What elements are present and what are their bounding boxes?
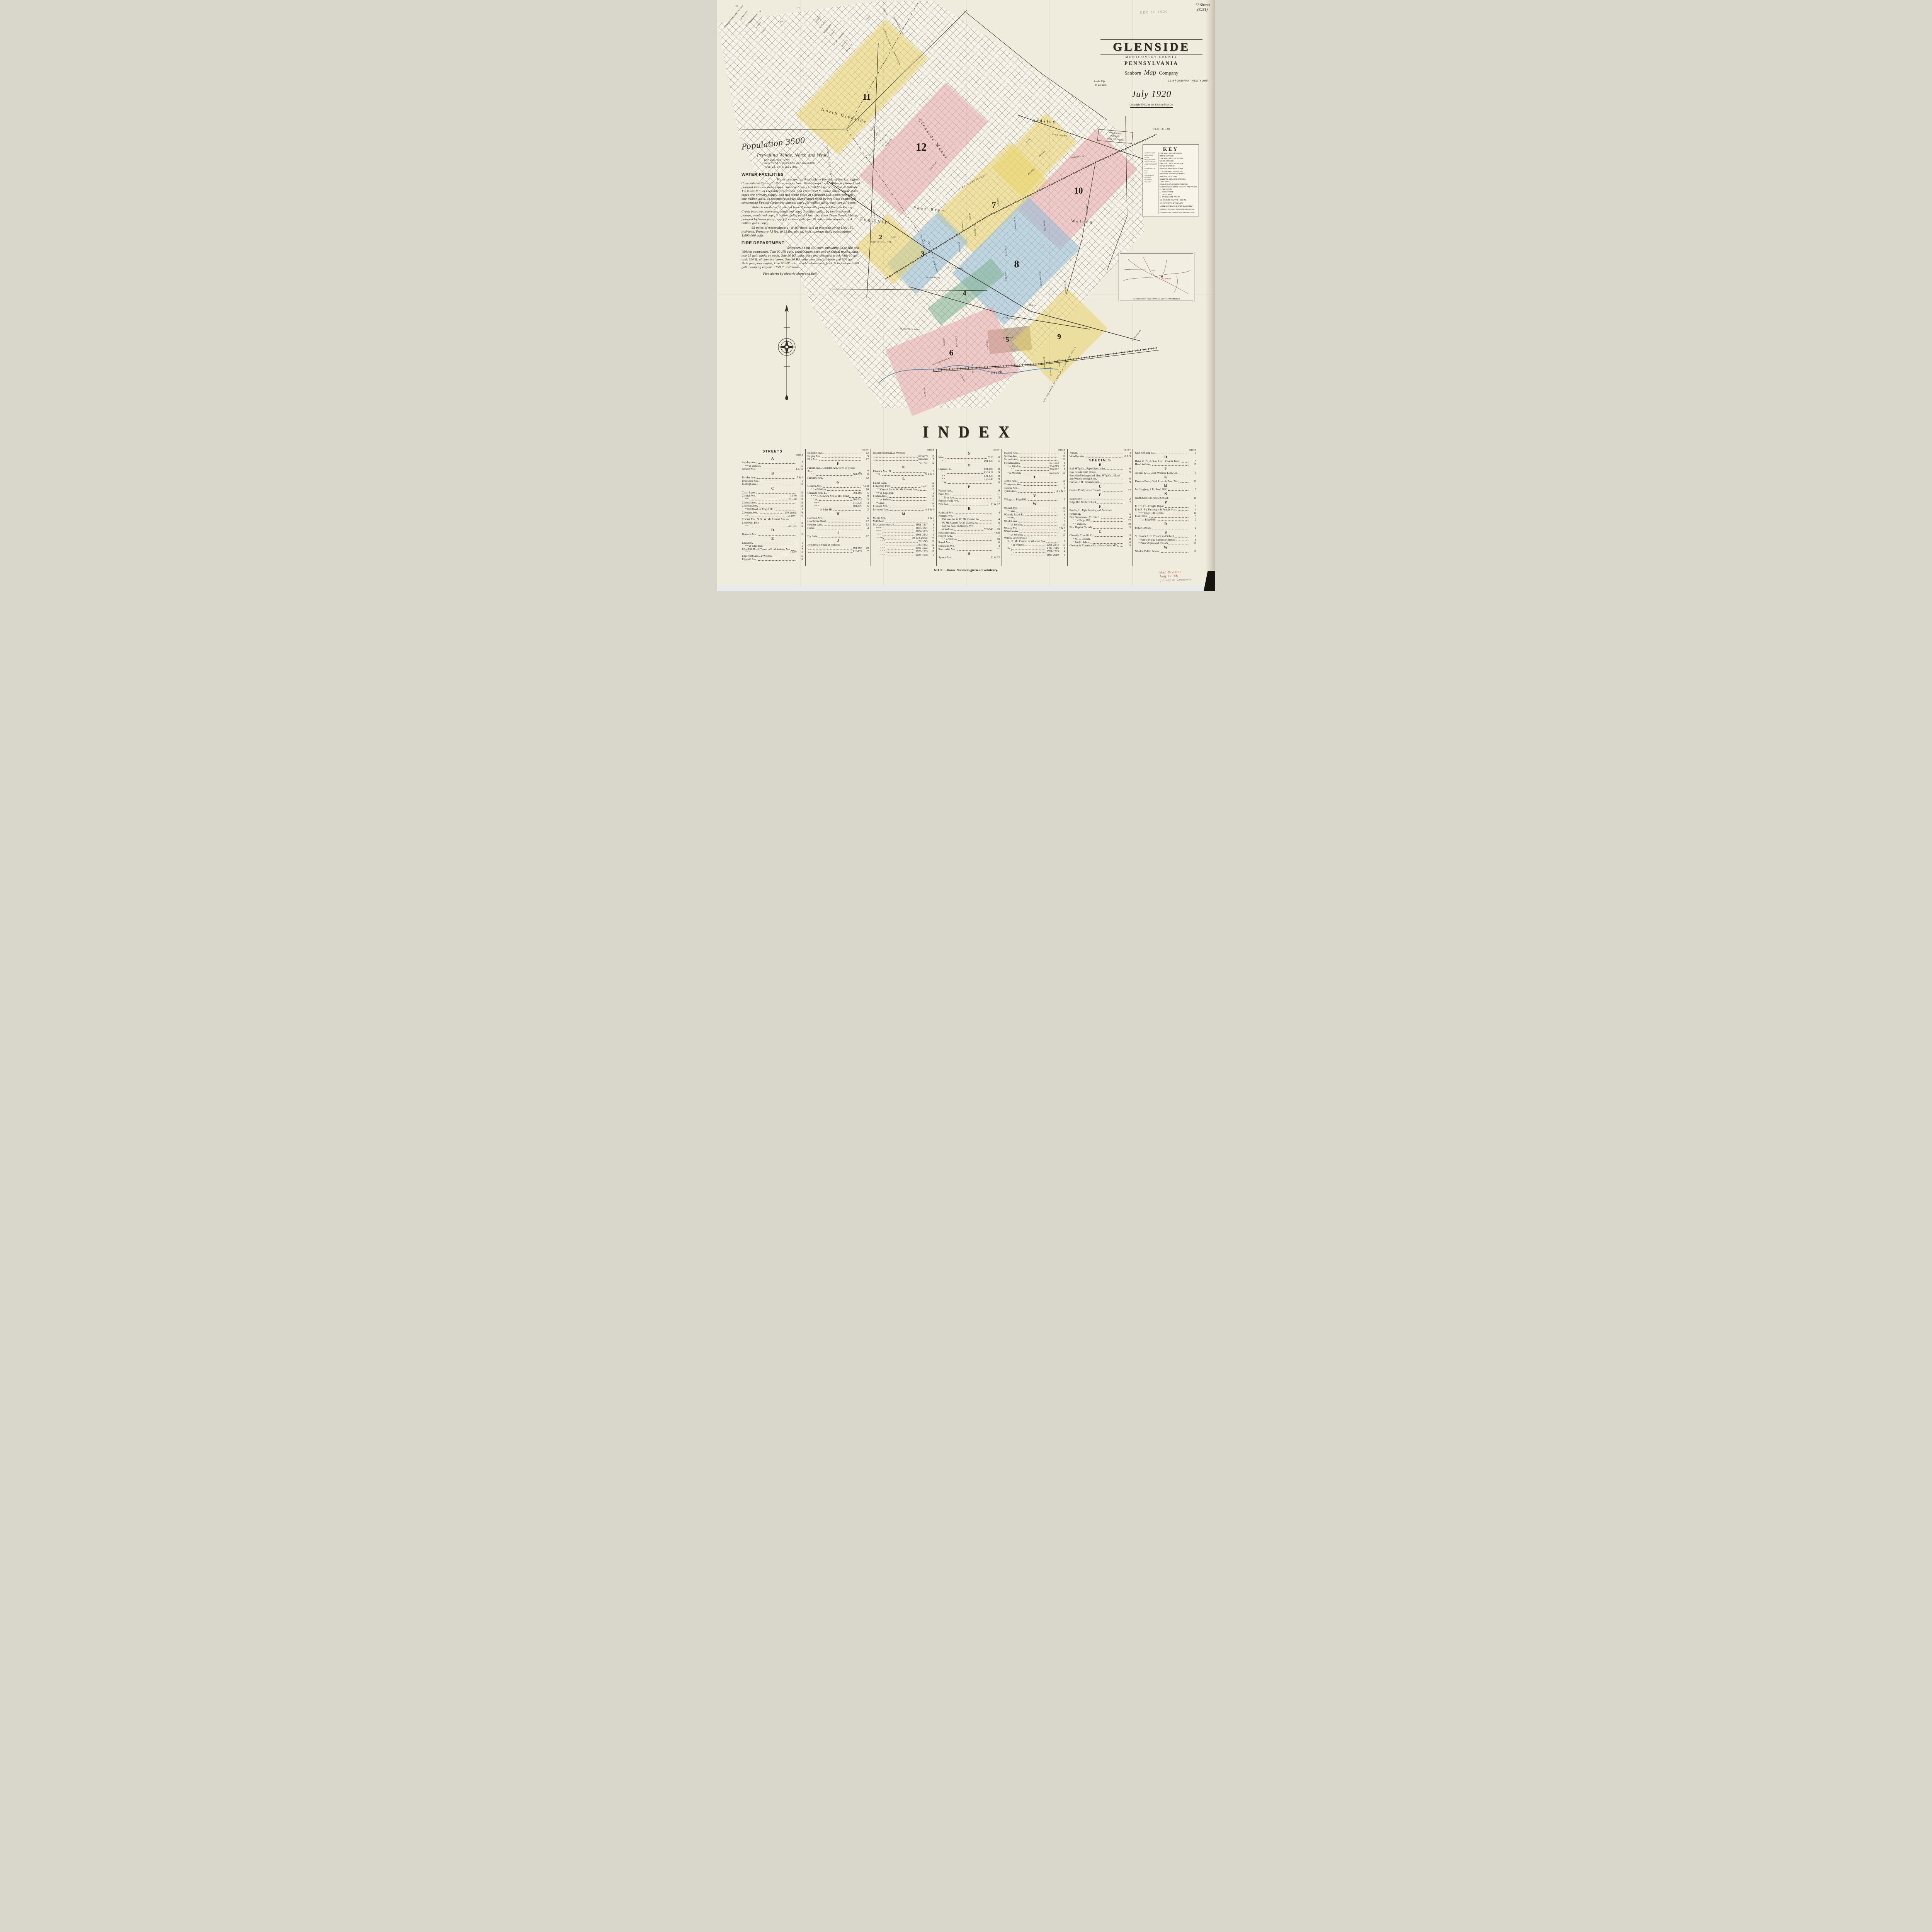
index-entry: Waverly Road, E.,6 xyxy=(1004,513,1065,517)
index-entry-name: W. Mt. Carmel Av. to Geneva Av. xyxy=(942,521,979,525)
index-entry: North Glenside Public School,11 xyxy=(1135,497,1196,500)
index-entry-range: 1503-1522 xyxy=(916,546,928,550)
index-entry-leader xyxy=(954,530,983,531)
index-entry-sheet: 4 xyxy=(1190,527,1196,530)
index-entry-sheet: 12 xyxy=(797,494,803,498)
index-entry: Cliveden Ave.,1-259, actual*8 xyxy=(742,511,803,515)
key-color-name: BROWN xyxy=(1162,196,1169,199)
index-entry-leader xyxy=(946,480,983,480)
index-entry: Jenkintown Road, at Weldon: xyxy=(873,451,934,455)
index-column: SHEETGulf Refining Co.,3HHeist, G. D., &… xyxy=(1133,449,1198,566)
index-entry-name: “ Hill Road, at Edge Hill, xyxy=(745,508,773,511)
index-entry: Roslyn Ave.,7 xyxy=(939,534,1000,538)
index-entry-sheet: 3 xyxy=(797,541,803,545)
index-entry-range: 601-620 xyxy=(853,505,862,508)
index-entry-leader xyxy=(824,519,862,519)
index-entry-range: 1822-1835 xyxy=(916,530,928,533)
fire-alarm-note: Fire alarm by electric siren and bell. xyxy=(763,272,861,276)
water-facilities-text: Water supplied by the Oaklane Division o… xyxy=(742,178,861,238)
index-entry-name: “ “ “ S. Keswick Ave to Mill Road xyxy=(811,495,849,498)
index-letter: N xyxy=(939,452,1000,456)
index-entry-sheet: 9 xyxy=(993,489,1000,493)
index-entry-range: 15-87 xyxy=(921,485,928,488)
key-symbol-item: ADJOINING BUILDING xyxy=(1145,179,1157,184)
index-entry-leader xyxy=(822,457,861,457)
index-entry-name: Ivy Lane, xyxy=(808,535,818,538)
index-entry: Willow Grove Pike.: xyxy=(1004,536,1065,540)
index-entry-leader xyxy=(1175,537,1189,537)
index-entry: Cricket Ave., N. S., W. Mt. Carmel Ave. … xyxy=(742,518,803,524)
index-entry-sheet: 11 xyxy=(797,504,803,508)
index-entry-sheet: 7 & 8 xyxy=(993,531,1000,535)
index-entry: Station Ave.,11 xyxy=(1004,455,1065,458)
index-entry-sheet: 2 xyxy=(1190,518,1196,522)
index-entry-leader xyxy=(882,532,915,532)
index-entry-name: “ “ “ xyxy=(815,502,820,505)
index-entry-range: 701-751 xyxy=(918,461,928,465)
index-entry-sheet: 12 xyxy=(862,520,869,523)
index-entry-name: “ “ “ xyxy=(880,543,885,547)
index-entry-sheet: 7 xyxy=(993,534,1000,538)
index-entry: “ at Weldon,2201-224310 xyxy=(1004,543,1065,547)
index-entry: Gulf Refining Co.,3 xyxy=(1135,451,1196,455)
index-letter: T xyxy=(1004,476,1065,480)
index-entry-leader xyxy=(1149,517,1189,518)
street-name-label: 183 xyxy=(734,5,738,8)
index-entry-name: Fender, L., Upholstering and Furniture R… xyxy=(1070,509,1121,515)
index-letter: L xyxy=(873,477,934,481)
index-entry-sheet: 4 xyxy=(1190,508,1196,512)
index-entry-leader xyxy=(1156,454,1189,454)
index-entry-sheet: 8 xyxy=(993,521,1000,525)
index-entry-leader xyxy=(1022,474,1049,474)
index-entry-name: “ “ “ xyxy=(815,505,820,508)
index-entry-name: “ “ xyxy=(745,498,748,501)
index-entry-name: Chestnut Ave., xyxy=(742,504,758,508)
index-entry-sheet: 11 xyxy=(993,493,1000,496)
index-entry-name: Walnut Ave., xyxy=(1004,507,1018,510)
index-entry-leader xyxy=(1157,520,1189,521)
county-label: MONTGOMERY COUNTY xyxy=(1094,55,1209,59)
key-color-name: BLUE xyxy=(1162,191,1167,194)
scale-line1: Scale 50ft xyxy=(1094,80,1105,83)
index-entry-sheet: 10 xyxy=(928,498,934,502)
index-entry-sheet: 5 xyxy=(1124,512,1131,516)
index-entry-sheet: 10 xyxy=(1190,550,1196,553)
index-entry-range: 1415-1616 xyxy=(1047,546,1059,550)
index-entry-leader xyxy=(944,462,983,462)
index-entry: Oakdale, E.,601-6088 xyxy=(939,468,1000,471)
index-entry-sheet: 11 xyxy=(797,521,803,525)
index-entry: “1998-20105 xyxy=(1004,553,1065,557)
index-entry-sheet: 8 xyxy=(993,481,1000,485)
index-specials-heading: SPECIALS xyxy=(1070,458,1131,462)
index-entry-sheet: 2 xyxy=(928,492,934,495)
index-entry-leader xyxy=(835,510,861,511)
index-entry: Burton, J. H., Greenhouses,9 xyxy=(1070,481,1131,484)
index-entry: Kenyon Bros., Coal, Lum. & Poul. Grit,11 xyxy=(1135,480,1196,483)
index-entry-leader xyxy=(1018,482,1058,483)
index-entry: Chelsea Ave.,11 xyxy=(742,501,803,505)
index-entry-leader xyxy=(882,475,924,476)
index-entry: “ “ Central Av. to W. Mt. Carmel Ave.12 xyxy=(873,488,934,492)
company-post: Company xyxy=(1159,70,1179,76)
index-entry: Central Ave.,15-4012 xyxy=(742,494,803,498)
index-entry-name: “ “ “ xyxy=(880,546,885,550)
index-entry: Glenside Core Oil Co.,5 xyxy=(1070,534,1131,537)
index-entry-sheet: 8 xyxy=(993,474,1000,478)
index-entry-name: Waverly Road, E., xyxy=(1004,513,1024,517)
index-entry-range: 1-259, actual xyxy=(782,511,797,515)
index-entry-sheet: 10 xyxy=(1059,465,1065,468)
index-entry: Edgehill Ave.,11 xyxy=(742,558,803,561)
index-entry: Spruce Ave.,11 & 12 xyxy=(939,556,1000,560)
index-entry-leader xyxy=(1011,549,1046,549)
index-entry-range: 410-428 xyxy=(853,502,862,505)
index-entry-sheet: 8 xyxy=(928,546,934,550)
index-entry-name: Tennis Ave., xyxy=(1004,480,1017,483)
index-entry-range: 623-639 xyxy=(918,455,928,458)
index-entry: Wesley Ave.,5 & 6 xyxy=(1004,527,1065,530)
index-entry-sheet: 8 xyxy=(862,473,869,476)
page-title: GLENSIDE xyxy=(1094,41,1209,53)
index-entry-sheet: 8 xyxy=(1190,535,1196,538)
index-entry-sheet: 11 xyxy=(993,499,1000,503)
street-name-label: CHESTNUT HILL PIKE xyxy=(870,241,891,243)
index-entry-sheet: 4 xyxy=(993,544,1000,548)
index-entry-leader xyxy=(893,472,927,473)
index-entry: Railroad Av. to W. Mt. Carmel Av.4 xyxy=(939,518,1000,521)
index-entry-name: Roberts Block, xyxy=(1135,527,1151,530)
index-entry-sheet: 3, 4 & 7 xyxy=(1056,490,1065,493)
index-sheet-column-label: SHEET xyxy=(1135,449,1196,451)
index-entry: Arnaud Ave.,3 & 12 xyxy=(742,468,803,471)
index-entry-sheet: 12 xyxy=(862,523,869,527)
index-entry-name: Lismore Ave., xyxy=(873,505,888,508)
index-entry-sheet: 4 xyxy=(862,527,869,530)
water-paragraph: Water is available, if needed from Phœni… xyxy=(742,206,861,225)
index-entry-leader xyxy=(1097,473,1124,473)
index-entry-leader xyxy=(886,549,915,549)
key-symbol-item: WINDOWS 1.2.3. WITH WIRED GLASS xyxy=(1145,152,1157,159)
index-entry-sheet: 12 xyxy=(862,476,869,480)
index-letter: F xyxy=(808,462,869,466)
index-entry-name: Ardsley Ave., xyxy=(742,461,757,464)
index-entry-sheet: 11 xyxy=(1059,455,1065,458)
index-entry-name: East Ave., xyxy=(742,541,753,545)
index-entry-name: “ Public School, xyxy=(1073,541,1091,544)
index-entry-name: Glenside Ave., E., xyxy=(808,492,827,495)
index-entry-sheet: 7 xyxy=(797,548,803,551)
index-entry-name: “ “ W., xyxy=(1007,517,1015,520)
key-color-line: „ „REDBRICK xyxy=(1160,188,1197,191)
index-letter: O xyxy=(939,464,1000,468)
index-entry-range: 7-10 xyxy=(988,456,993,459)
index-entry-name: “ “ at Weldon, xyxy=(1007,523,1023,527)
index-entry-sheet: 5 xyxy=(862,492,869,495)
index-entry: “ Hill Road, at Edge Hill,2 xyxy=(742,508,803,511)
index-entry-leader xyxy=(1020,464,1049,464)
index-entry-sheet: 7 xyxy=(862,550,869,553)
index-entry-name: Edgley Ave., xyxy=(808,455,821,458)
index-entry-name: “ “ W., xyxy=(811,498,818,502)
index-entry-sheet: 8 xyxy=(1059,468,1065,471)
key-legend-line: „ 2ND & 4TH „ xyxy=(1160,180,1197,183)
index-entry-sheet: 8 xyxy=(1059,461,1065,465)
index-letter: M xyxy=(1135,484,1196,488)
index-entry-sheet: 7 xyxy=(862,470,869,473)
inset-town-label: GLENSIDE xyxy=(1162,278,1171,280)
index-entry-leader xyxy=(946,473,983,474)
index-entry-sheet: 6 xyxy=(1059,513,1065,517)
index-entry: Burleigh Ave.,12 xyxy=(742,483,803,486)
index-entry-range: 309-316 xyxy=(853,498,862,502)
index-entry: “ “ “15-9712 xyxy=(742,551,803,554)
index-entry: Mt. Carmel Ave., E.,1801-18078 xyxy=(873,523,934,527)
street-name-label: LAFAYETTE xyxy=(739,10,748,20)
index-entry-range: 616-622 xyxy=(853,550,862,553)
index-entry-sheet: 3 xyxy=(1190,451,1196,455)
index-entry-range: 610-618 xyxy=(984,471,993,474)
index-column: SHEETWilson,4Woodlyn Ave.,8 & 9SPECIALSB… xyxy=(1067,449,1133,566)
index-entry: Roberts Block,4 xyxy=(1135,527,1196,530)
company-address: 11.BROADWAY, NEW YORK. xyxy=(1168,80,1209,87)
index-entry: “ “ W.,6 xyxy=(1004,517,1065,520)
index-entry-leader xyxy=(958,540,992,541)
index-entry-range: 1801-1807 xyxy=(916,523,928,527)
index-entry: Justice, F. G., Coal, Wood & Lum. Co.,5 xyxy=(1135,471,1196,475)
index-entry: “ “ at Weldon,10 xyxy=(808,488,869,492)
inset-caption: LOCATION OF THIS TOWN AS ABOVE UNDERLINE… xyxy=(1120,298,1193,300)
index-entry-name: North Glenside Public School, xyxy=(1135,497,1168,500)
index-entry: Royal Ave.,6 xyxy=(939,541,1000,544)
index-entry: “ “101-17112 xyxy=(742,524,803,528)
index-letter: W xyxy=(1135,546,1196,550)
index-entry: “ Lane,12 xyxy=(873,502,934,505)
index-entry-leader xyxy=(956,547,992,547)
index-entry-leader xyxy=(889,507,927,507)
index-entry-name: Weldon Public School, xyxy=(1135,550,1160,553)
index-letter: W xyxy=(1004,502,1065,506)
index-entry: “ “ “ Edge Hill Depots,11 xyxy=(1135,512,1196,515)
key-color-line: „ „BROWNFIRE PROOF xyxy=(1160,196,1197,199)
key-legend-line: FIRE WALL 6 IN. AB'V ROOF xyxy=(1160,152,1197,155)
street-name-label: × xyxy=(1083,227,1084,229)
index-entry: Carmel Presbyterian Church,12 xyxy=(1070,489,1131,492)
key-color-prefix: BUILDINGS COLORED xyxy=(1160,186,1178,189)
index-letter: H xyxy=(1135,456,1196,459)
scan-backing xyxy=(717,586,1215,591)
index-entry-leader xyxy=(886,522,927,522)
index-entry: Paxson Ave.,9 xyxy=(939,489,1000,493)
index-entry-name: Wharton Ave., xyxy=(1004,530,1020,533)
index-entry: Kiswick Ave., N.,9 xyxy=(873,470,934,473)
index-title: INDEX xyxy=(717,422,1215,442)
index-entry-sheet: 2 xyxy=(862,508,869,512)
index-entry-name: Cliveden Ave., xyxy=(742,511,758,515)
index-entry-sheet: 10 xyxy=(1059,533,1065,537)
index-entry: “ “ at Edge Hill,2 xyxy=(1135,518,1196,522)
index-entry: “ “ “ S. Keswick Ave to Mill Road9 xyxy=(808,495,869,498)
key-title: KEY xyxy=(1145,146,1197,152)
key-color-line: „ „GRAYIRON xyxy=(1160,194,1197,196)
index-entry: “ “610-6189 xyxy=(939,471,1000,474)
index-entry-leader xyxy=(1180,482,1189,483)
index-entry-leader xyxy=(948,483,992,484)
index-entry-leader xyxy=(890,510,923,511)
index-entry-name: “ “ Weldon, xyxy=(1073,522,1086,526)
index-entry-leader xyxy=(824,479,861,479)
index-entry-sheet: 9 xyxy=(1059,451,1065,455)
index-entry-leader xyxy=(1019,509,1058,509)
index-entry: “ “ W.,309-3163 xyxy=(808,498,869,502)
index-entry-leader xyxy=(808,549,852,549)
index-entry-name: Bickley Ave., xyxy=(742,476,757,480)
index-entry-leader xyxy=(759,485,796,485)
index-entry: Roberts Ave.: xyxy=(939,514,1000,518)
index-entry-leader xyxy=(955,514,992,514)
company-pre: Sanborn xyxy=(1124,70,1141,76)
index-entry-name: Fairview Ave., xyxy=(808,476,823,480)
index-entry-sheet: 4 xyxy=(1124,451,1131,455)
index-entry-name: “ “ W., xyxy=(876,536,884,540)
index-entry-leader xyxy=(953,537,992,537)
index-entry-name: “ “ at Edge Hill, xyxy=(1138,518,1156,522)
index-entry-leader xyxy=(758,535,796,536)
index-letter: R xyxy=(1135,522,1196,526)
index-entry-sheet: 7 xyxy=(993,524,1000,528)
index-entry-sheet: 11 xyxy=(1059,480,1065,483)
index-entry: Ball M'f'g Co., Paper Specialties,6 xyxy=(1070,467,1131,471)
index-entry-sheet: 12 xyxy=(1059,510,1065,513)
index-entry-name: “ S., xyxy=(876,473,881,476)
street-name-label: 178 xyxy=(757,10,761,13)
index-entry-sheet: 2 xyxy=(797,508,803,511)
index-sheet-column-label: SHEET xyxy=(742,454,803,456)
index-entry: “ “520-5228 xyxy=(1004,468,1065,471)
key-legend-line: OPENING WITH IRON DOOR xyxy=(1160,168,1197,170)
key-legend-line: WINDOWS 1ST & 3RD STORIES xyxy=(1160,178,1197,181)
index-entry-range: 15-40 xyxy=(790,494,797,498)
index-entry-sheet: *8 xyxy=(797,511,803,515)
index-entry-sheet: 6 xyxy=(993,456,1000,459)
index-entry: “ Bryn Ave.,3 xyxy=(939,496,1000,500)
index-entry-name: Edge Hill Road, Tyson to E. of Ardsley A… xyxy=(742,548,791,551)
index-entry: “ “ “801-86212 xyxy=(873,543,934,547)
index-entry-sheet: 8 xyxy=(1124,537,1131,541)
index-entry: Ivy Lane,12 xyxy=(808,535,869,538)
index-entry-name: St. Luke's R. C. Church and School, xyxy=(1135,535,1175,538)
index-entry-name: Hotel Weldon, xyxy=(1135,463,1151,466)
index-entry-sheet: 6 xyxy=(862,517,869,520)
index-entry: Linden Ave.,11 xyxy=(873,495,934,498)
index-entry: Thompson Ave.,3 xyxy=(1004,483,1065,486)
info-block: Population 3500 Prevailing Winds, North … xyxy=(742,142,861,276)
index-entry-sheet: 7 & 8 xyxy=(862,485,869,488)
index-entry-sheet: 5 xyxy=(1059,553,1065,557)
index-entry-leader xyxy=(1013,552,1046,553)
index-entry-name: Kenyon Bros., Coal, Lum. & Poul. Grit, xyxy=(1135,480,1179,483)
index-entry: Fairview Ave.,12 xyxy=(808,476,869,480)
index-entry-sheet: 11 xyxy=(928,540,934,543)
key-symbol-item: GRAVEL OR TIN R'F ○ xyxy=(1145,168,1157,172)
index-entry-range: 701-745 xyxy=(918,540,928,543)
index-entry: at Weldon,926-94610 xyxy=(939,528,1000,531)
index-entry-range: 520-522 xyxy=(1049,468,1059,471)
index-letter: J xyxy=(1135,467,1196,471)
index-entry-sheet: *4 xyxy=(928,536,934,540)
key-symbol-item: SHINGLE ROOF × xyxy=(1145,161,1157,163)
index-entry: 601-60410 xyxy=(808,546,869,550)
index-entry: Weldon Public School,10 xyxy=(1135,550,1196,553)
index-entry-sheet: 9 xyxy=(928,527,934,530)
index-entry: 623-63910 xyxy=(873,455,934,458)
index-entry: Sylvania Ave.,501-5038 xyxy=(1004,461,1065,465)
index-entry-leader xyxy=(1097,503,1123,503)
water-paragraph: Water supplied by the Oaklane Division o… xyxy=(742,178,861,205)
index-entry-name: “ Bryn Ave., xyxy=(942,496,956,500)
index-entry-leader xyxy=(891,487,921,488)
index-entry-name: Central Ave., xyxy=(742,494,756,498)
index-entry-leader xyxy=(749,517,787,517)
edition-date: July 1920 xyxy=(1094,89,1209,100)
index-entry: Edgecomb Ave., at Weldon,10 xyxy=(742,554,803,558)
index-entry: “ “621-6288 xyxy=(939,474,1000,478)
company-map: Map xyxy=(1143,69,1158,76)
key-color-prefix: „ „ xyxy=(1160,194,1161,196)
index-entry: Eagle Hotel,2 xyxy=(1070,497,1131,501)
index-entry-leader xyxy=(819,460,862,461)
water-facilities-heading: WATER FACILITIES xyxy=(742,172,861,177)
index-entry-leader xyxy=(1020,532,1058,532)
index-entry-leader xyxy=(874,460,918,461)
index-entry-range: 621-628 xyxy=(984,474,993,478)
index-entry-range: 523-536 xyxy=(1049,471,1059,475)
index-entry-sheet: 10 xyxy=(1190,542,1196,545)
index-entry-sheet: 2 xyxy=(1059,498,1065,502)
index-entry: Geneva Ave.,7 & 8 xyxy=(808,485,869,488)
index-entry-name: “ “ at Weldon, xyxy=(876,498,892,502)
index-entry-name: “ xyxy=(1011,550,1012,553)
index-entry-range: 101-171 xyxy=(787,524,797,528)
index-entry-sheet: 4, 8 & 9 xyxy=(924,508,934,512)
index-column: STREETSSHEETAArdsley Ave.,7“ “ at Weldon… xyxy=(740,449,805,566)
index-entry-name: “ “ at Weldon, xyxy=(811,488,827,492)
index-entry-leader xyxy=(764,547,796,547)
index-entry-leader xyxy=(974,527,992,527)
index-entry-sheet: 6 xyxy=(1124,541,1131,544)
index-entry: Jenkintown Road, at Weldon: xyxy=(808,543,869,547)
key-color-meaning: FIRE PROOF xyxy=(1169,196,1180,199)
index-entry-name: Linden Ave., xyxy=(873,495,887,498)
index-entry-name: Royal Ave., xyxy=(939,541,951,544)
index-letter: C xyxy=(1070,485,1131,489)
index-entry-sheet: 9 xyxy=(797,480,803,483)
index-entry-sheet: 9 xyxy=(928,520,934,523)
index-entry-sheet: 11 xyxy=(1190,497,1196,500)
index-entry-leader xyxy=(849,497,861,498)
index-entry-name: Heist, G. D., & Son, Lum., Coal & Feed, xyxy=(1135,460,1180,463)
index-entry-leader xyxy=(1176,541,1189,541)
index-entry-name: Pennsylvania Ave., xyxy=(939,499,959,503)
index-entry: Railroad Ave.,4 xyxy=(939,511,1000,515)
index-entry-sheet: 6 xyxy=(1059,546,1065,550)
index-entry-sheet: 10 xyxy=(1059,471,1065,475)
index-entry-leader xyxy=(756,493,796,494)
index-entry: “ M. E. Church,8 xyxy=(1070,537,1131,541)
index-entry: Penn Ave.,11 xyxy=(939,493,1000,496)
library-of-congress-stamp-1955: Map Division Aug 12 '55 Library of Congr… xyxy=(1160,570,1192,582)
